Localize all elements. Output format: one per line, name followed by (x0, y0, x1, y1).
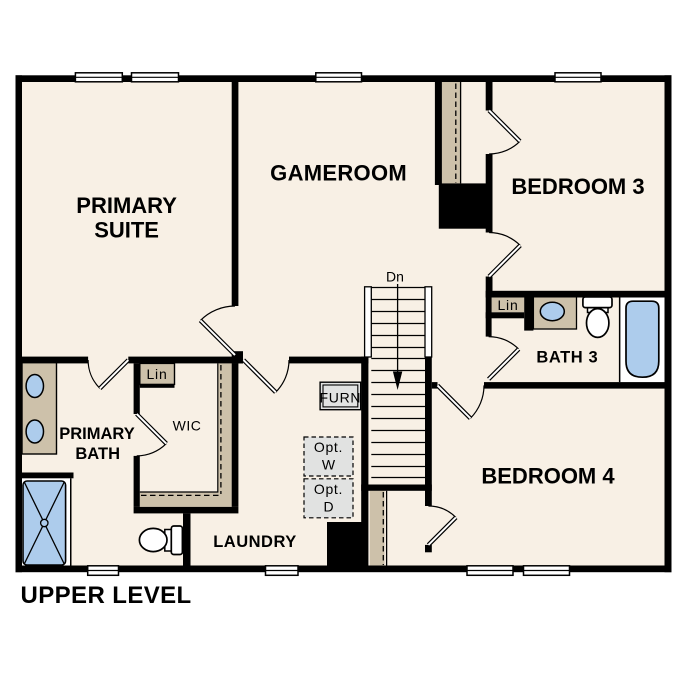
svg-text:WIC: WIC (173, 418, 202, 434)
svg-text:Dn: Dn (386, 269, 404, 285)
svg-text:Lin: Lin (497, 297, 518, 313)
svg-text:UPPER LEVEL: UPPER LEVEL (21, 582, 192, 609)
svg-text:Lin: Lin (146, 366, 167, 382)
svg-text:Opt.: Opt. (314, 481, 343, 497)
svg-text:LAUNDRY: LAUNDRY (213, 533, 297, 551)
svg-text:SUITE: SUITE (94, 218, 159, 243)
svg-text:W: W (322, 457, 336, 473)
svg-text:FURN: FURN (320, 390, 362, 406)
svg-text:D: D (323, 498, 333, 514)
svg-text:Opt.: Opt. (314, 439, 343, 455)
svg-text:BATH 3: BATH 3 (536, 349, 598, 367)
svg-text:GAMEROOM: GAMEROOM (270, 160, 407, 185)
svg-text:PRIMARY: PRIMARY (76, 193, 177, 218)
svg-text:BATH: BATH (75, 445, 120, 463)
svg-text:PRIMARY: PRIMARY (59, 425, 134, 443)
svg-text:BEDROOM 3: BEDROOM 3 (511, 174, 644, 199)
svg-text:BEDROOM 4: BEDROOM 4 (481, 464, 615, 489)
